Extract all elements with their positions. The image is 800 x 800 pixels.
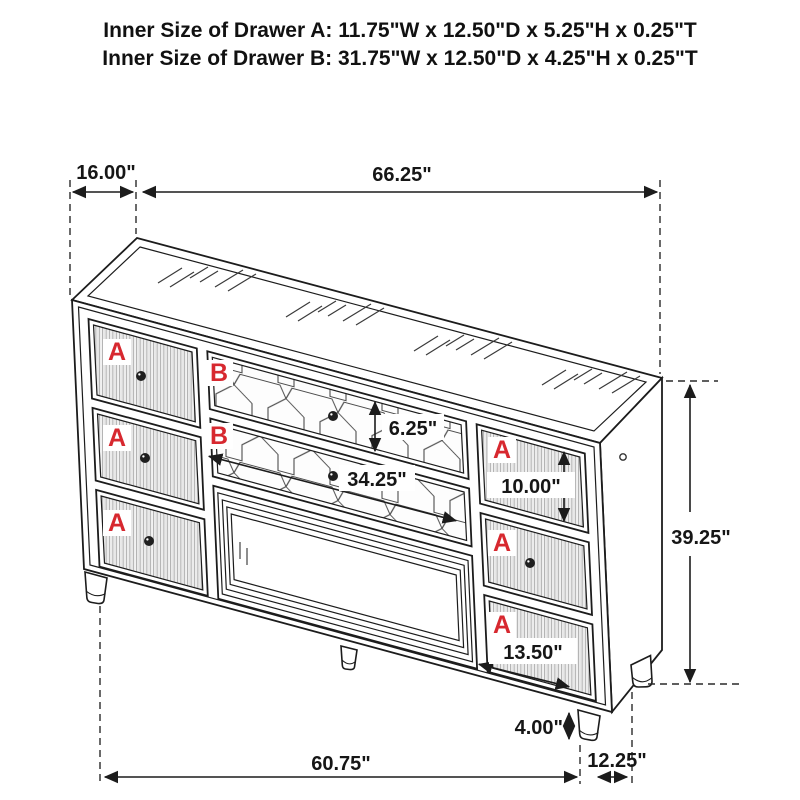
diagram-canvas: Inner Size of Drawer A: 11.75"W x 12.50"… bbox=[0, 0, 800, 800]
dim-leg-height: 4.00" bbox=[515, 713, 569, 739]
front-left-leg bbox=[85, 572, 107, 604]
label-drawer-b: B bbox=[210, 359, 228, 387]
dim-overall-height-label: 39.25" bbox=[671, 527, 731, 549]
label-drawer-a: A bbox=[493, 436, 511, 464]
center-foot bbox=[341, 646, 357, 670]
dim-top-depth-label: 16.00" bbox=[76, 162, 136, 184]
dim-drawer-a-height-label: 10.00" bbox=[501, 476, 561, 498]
furniture-dimension-diagram: Inner Size of Drawer A: 11.75"W x 12.50"… bbox=[0, 0, 800, 800]
dim-top-width-label: 66.25" bbox=[372, 164, 432, 186]
label-drawer-a: A bbox=[493, 611, 511, 639]
header: Inner Size of Drawer A: 11.75"W x 12.50"… bbox=[102, 19, 698, 70]
dim-base-depth-label: 12.25" bbox=[587, 750, 647, 772]
label-drawer-a: A bbox=[108, 338, 126, 366]
header-drawer-a-spec: Inner Size of Drawer A: 11.75"W x 12.50"… bbox=[103, 19, 697, 42]
label-drawer-a: A bbox=[108, 509, 126, 537]
label-drawer-a: A bbox=[108, 424, 126, 452]
knob-icon bbox=[140, 453, 150, 463]
dim-drawer-b-width-label: 34.25" bbox=[347, 469, 407, 491]
dim-drawer-b-height-label: 6.25" bbox=[389, 418, 437, 440]
knob-icon bbox=[525, 558, 535, 568]
dim-drawer-a-width-label: 13.50" bbox=[503, 642, 563, 664]
knob-icon bbox=[144, 536, 154, 546]
knob-icon bbox=[136, 371, 146, 381]
knob-icon bbox=[328, 411, 338, 421]
dim-base-width-label: 60.75" bbox=[311, 753, 371, 775]
front-right-leg bbox=[578, 710, 600, 740]
label-drawer-a: A bbox=[493, 529, 511, 557]
header-drawer-b-spec: Inner Size of Drawer B: 31.75"W x 12.50"… bbox=[102, 47, 698, 70]
dim-leg-height-label: 4.00" bbox=[515, 717, 563, 739]
knob-icon bbox=[328, 471, 338, 481]
label-drawer-b: B bbox=[210, 422, 228, 450]
